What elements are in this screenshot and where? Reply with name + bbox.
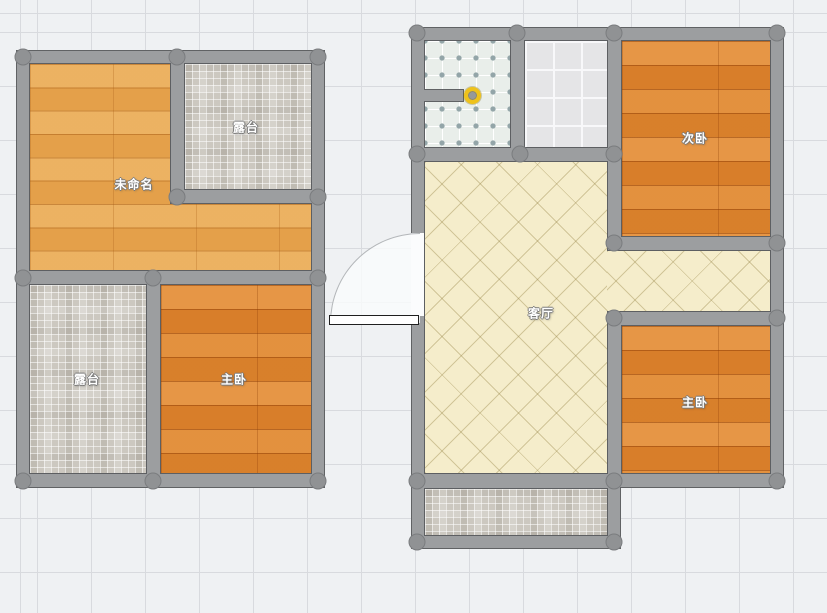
room-unnamed-label: 未命名 [114, 176, 153, 193]
floorplan-canvas[interactable]: 未命名 露台 露台 主卧 次卧 客厅 主卧 [0, 0, 827, 613]
wall-joint[interactable] [145, 270, 162, 287]
room-master-right-label: 主卧 [682, 394, 708, 411]
wall-joint[interactable] [310, 49, 327, 66]
wall-joint[interactable] [509, 25, 526, 42]
wall-joint[interactable] [769, 310, 786, 327]
wall-joint[interactable] [15, 473, 32, 490]
wall-joint[interactable] [409, 25, 426, 42]
room-unnamed-floor-lower[interactable] [29, 203, 312, 271]
wall-endpoint-handle[interactable] [464, 87, 481, 104]
wall-joint[interactable] [512, 146, 529, 163]
door-swing-arc [330, 233, 420, 323]
wall-joint[interactable] [310, 270, 327, 287]
room-living-label: 客厅 [528, 305, 554, 322]
wall-joint[interactable] [769, 25, 786, 42]
room-living-floor-extension[interactable] [607, 250, 771, 312]
wall-joint[interactable] [606, 25, 623, 42]
wall-joint[interactable] [409, 473, 426, 490]
door-leaf[interactable] [329, 315, 419, 325]
room-second-bedroom-label: 次卧 [682, 130, 708, 147]
wall-joint[interactable] [606, 534, 623, 551]
room-living-floor-main[interactable] [424, 161, 608, 474]
wall-joint[interactable] [409, 534, 426, 551]
wall-joint[interactable] [169, 189, 186, 206]
wall-joint[interactable] [606, 235, 623, 252]
room-master-left-label: 主卧 [221, 371, 247, 388]
wall-joint[interactable] [169, 49, 186, 66]
room-terrace-bottom-label: 露台 [74, 371, 100, 388]
room-whitetile-floor[interactable] [524, 40, 608, 148]
wall-joint[interactable] [769, 235, 786, 252]
bathroom-wall-stub[interactable] [424, 89, 464, 102]
wall-joint[interactable] [606, 310, 623, 327]
room-terrace-top-label: 露台 [233, 119, 259, 136]
wall-joint[interactable] [409, 146, 426, 163]
wall-joint[interactable] [15, 49, 32, 66]
wall-joint[interactable] [606, 473, 623, 490]
wall-joint[interactable] [769, 473, 786, 490]
wall-joint[interactable] [15, 270, 32, 287]
balcony-floor[interactable] [424, 488, 608, 536]
wall-joint[interactable] [310, 189, 327, 206]
wall-joint[interactable] [606, 146, 623, 163]
wall-joint[interactable] [145, 473, 162, 490]
wall-joint[interactable] [310, 473, 327, 490]
